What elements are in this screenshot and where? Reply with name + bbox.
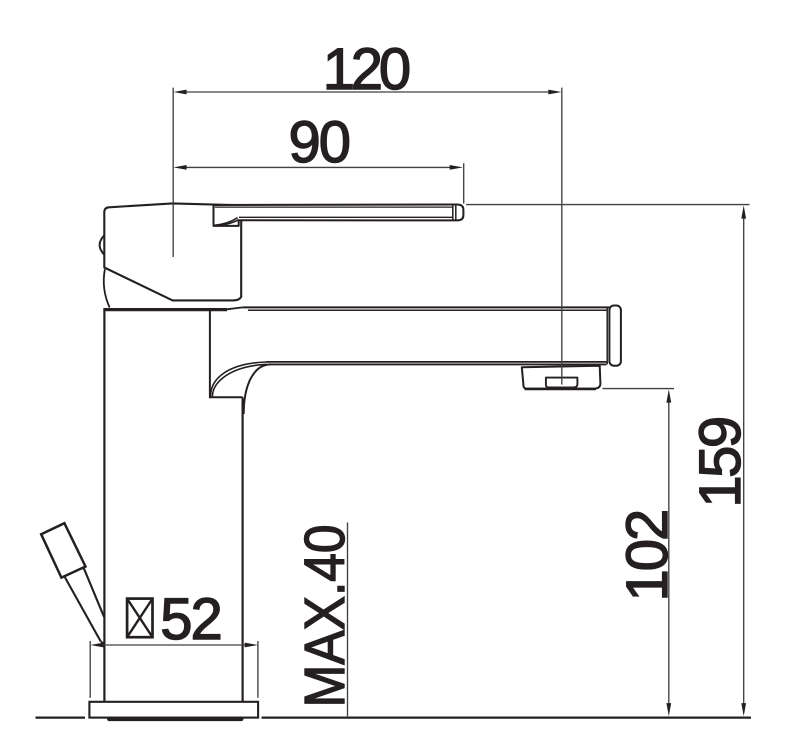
svg-text:159: 159 xyxy=(688,418,753,508)
svg-text:120: 120 xyxy=(323,37,409,102)
svg-text:MAX.40: MAX.40 xyxy=(293,525,357,708)
svg-text:90: 90 xyxy=(289,110,350,175)
svg-text:102: 102 xyxy=(615,511,680,602)
svg-text:52: 52 xyxy=(160,587,221,652)
